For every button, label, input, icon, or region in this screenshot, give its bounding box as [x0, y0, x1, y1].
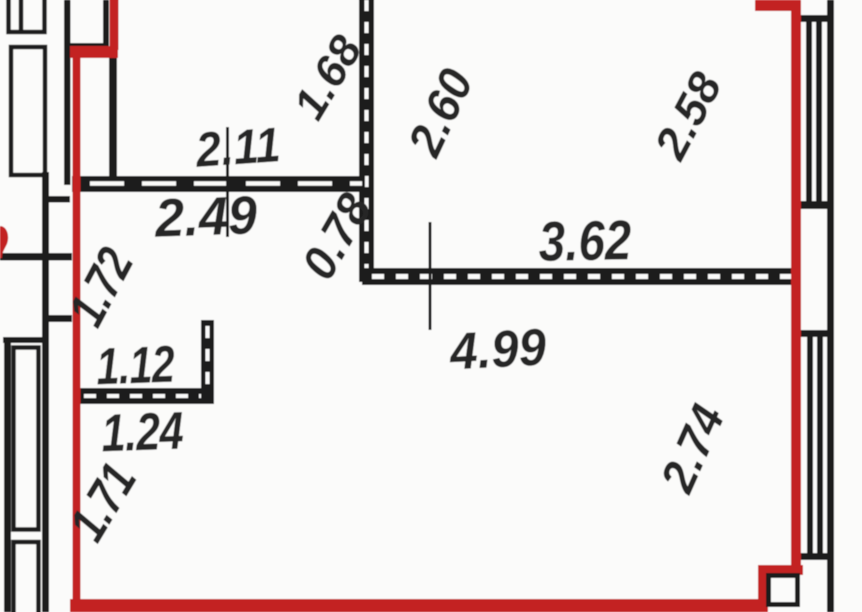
svg-text:1.12: 1.12	[95, 334, 175, 395]
svg-text:3.62: 3.62	[538, 210, 632, 274]
svg-text:4.99: 4.99	[448, 317, 548, 380]
svg-text:2.11: 2.11	[193, 116, 282, 177]
svg-text:2.49: 2.49	[153, 186, 258, 249]
svg-text:1.24: 1.24	[100, 402, 184, 464]
